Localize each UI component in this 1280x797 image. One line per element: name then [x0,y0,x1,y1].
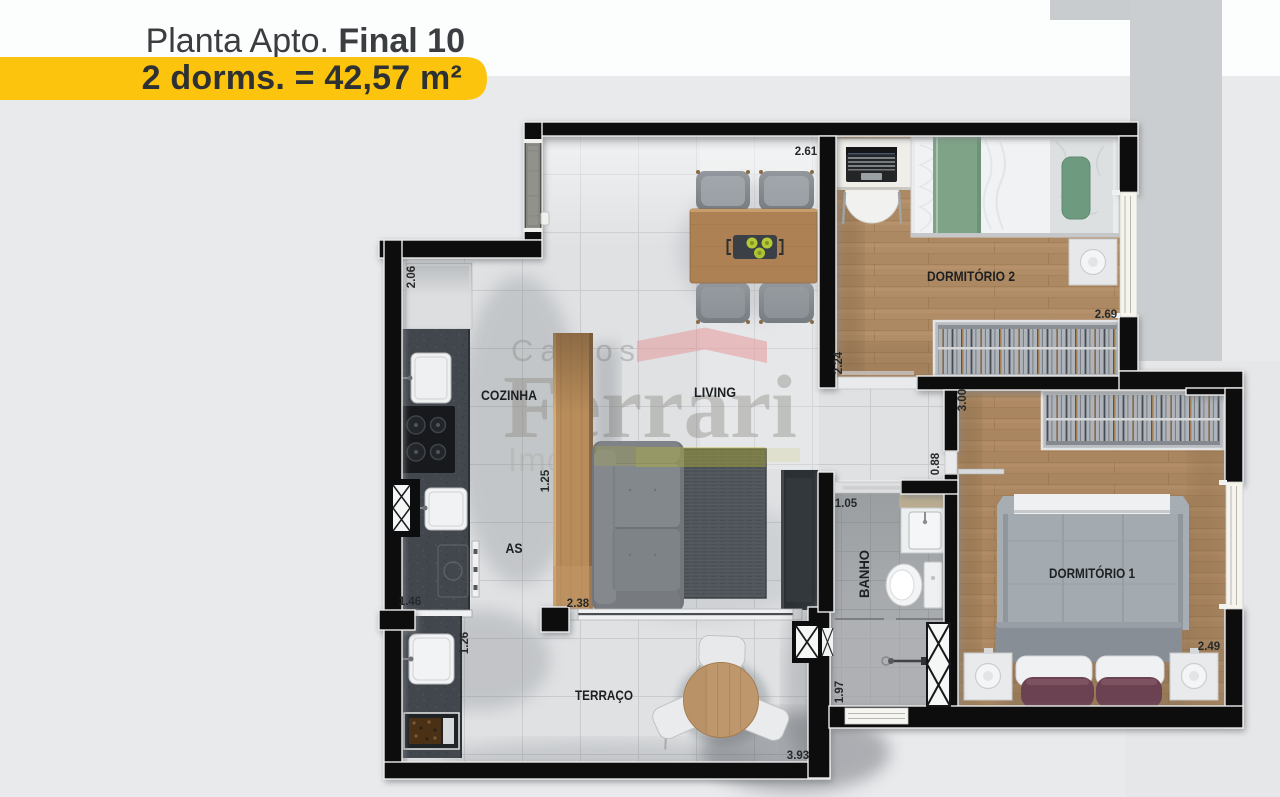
svg-text:1.25: 1.25 [540,469,552,492]
svg-text:DORMITÓRIO 1: DORMITÓRIO 1 [1049,564,1135,581]
svg-text:2.38: 2.38 [567,598,590,610]
svg-text:0.88: 0.88 [930,452,942,475]
svg-text:TERRAÇO: TERRAÇO [575,687,633,703]
svg-text:1.05: 1.05 [835,498,858,510]
svg-text:1.97: 1.97 [834,681,846,703]
svg-text:DORMITÓRIO 2: DORMITÓRIO 2 [927,267,1015,284]
svg-text:2.69: 2.69 [1095,309,1117,321]
svg-text:2.61: 2.61 [795,146,818,158]
svg-text:2.06: 2.06 [406,266,418,288]
svg-text:3.93: 3.93 [787,750,809,762]
svg-text:BANHO: BANHO [856,550,872,598]
svg-text:2.24: 2.24 [833,351,845,374]
svg-text:3.00: 3.00 [957,389,969,411]
svg-text:LIVING: LIVING [694,384,736,400]
svg-text:1.26: 1.26 [459,632,471,654]
svg-text:Planta Apto. Final 10: Planta Apto. Final 10 [146,22,465,60]
svg-text:2 dorms. = 42,57 m²: 2 dorms. = 42,57 m² [142,59,462,97]
svg-text:COZINHA: COZINHA [481,387,537,403]
svg-text:1.46: 1.46 [399,596,421,608]
svg-text:2.49: 2.49 [1198,641,1220,653]
svg-text:AS: AS [506,540,523,556]
